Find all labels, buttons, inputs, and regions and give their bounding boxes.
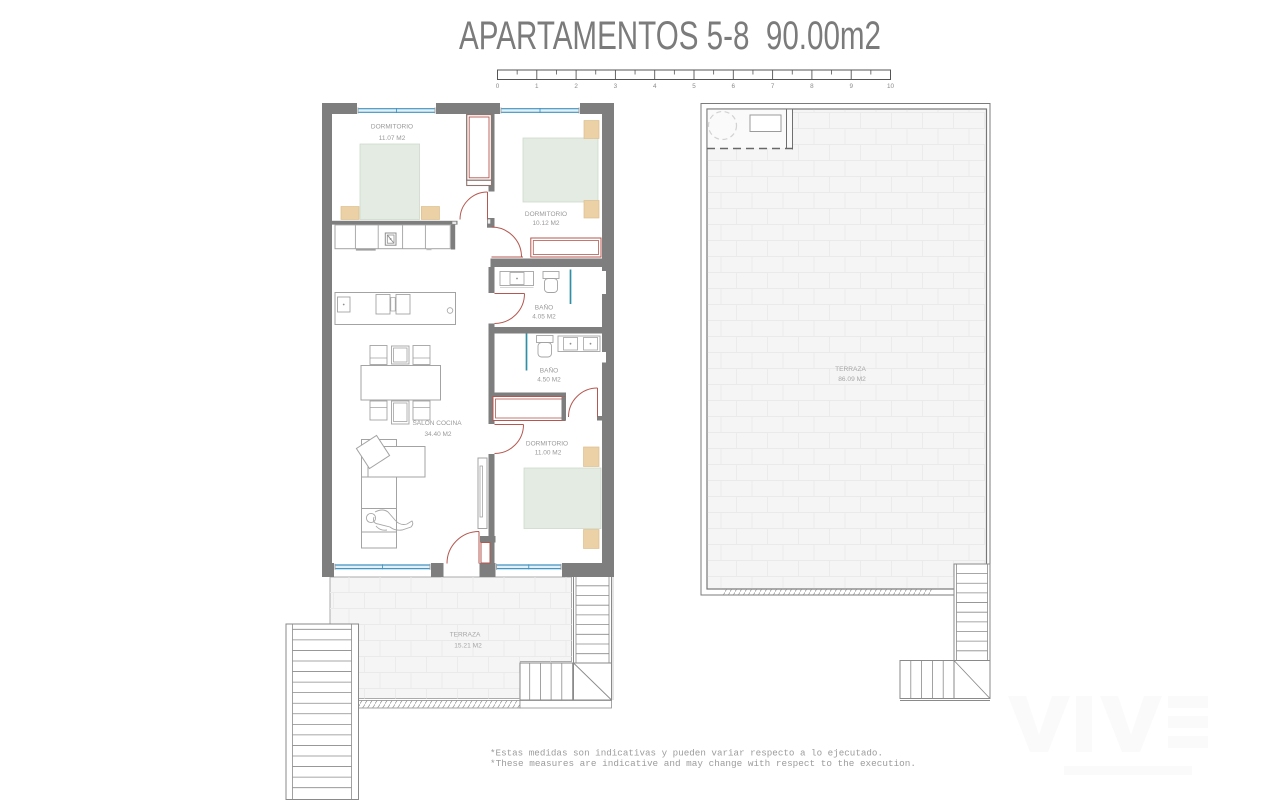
svg-text:SALON COCINA: SALON COCINA [412, 420, 462, 427]
svg-text:DORMITORIO: DORMITORIO [371, 124, 413, 131]
svg-text:BAÑO: BAÑO [535, 303, 553, 312]
svg-text:10.12 M2: 10.12 M2 [532, 220, 559, 227]
svg-text:34.40 M2: 34.40 M2 [424, 431, 451, 438]
svg-text:7: 7 [771, 83, 775, 90]
svg-text:4.05 M2: 4.05 M2 [532, 314, 556, 321]
svg-text:TERRAZA: TERRAZA [450, 632, 481, 639]
svg-text:DORMITORIO: DORMITORIO [525, 211, 567, 218]
svg-text:11.07 M2: 11.07 M2 [379, 135, 406, 142]
svg-text:8: 8 [810, 83, 814, 90]
svg-text:6: 6 [732, 83, 736, 90]
svg-text:11.00 M2: 11.00 M2 [535, 450, 562, 457]
svg-text:BAÑO: BAÑO [540, 366, 558, 375]
svg-text:APARTAMENTOS 5-8 90.00m2: APARTAMENTOS 5-8 90.00m2 [459, 14, 881, 58]
svg-text:DORMITORIO: DORMITORIO [526, 441, 568, 448]
svg-text:9: 9 [849, 83, 853, 90]
svg-text:*Estas medidas son indicativas: *Estas medidas son indicativas y pueden … [490, 749, 883, 759]
svg-text:0: 0 [496, 83, 500, 90]
svg-text:15.21 M2: 15.21 M2 [454, 643, 482, 650]
svg-text:2: 2 [574, 83, 578, 90]
svg-text:*These measures are indicative: *These measures are indicative and may c… [490, 759, 916, 769]
svg-text:1: 1 [535, 83, 539, 90]
svg-text:4.50 M2: 4.50 M2 [537, 377, 561, 384]
svg-text:4: 4 [653, 83, 657, 90]
svg-text:3: 3 [614, 83, 618, 90]
svg-text:86.09 M2: 86.09 M2 [838, 376, 866, 383]
svg-text:TERRAZA: TERRAZA [835, 366, 866, 373]
svg-text:10: 10 [887, 83, 895, 90]
svg-text:5: 5 [692, 83, 696, 90]
